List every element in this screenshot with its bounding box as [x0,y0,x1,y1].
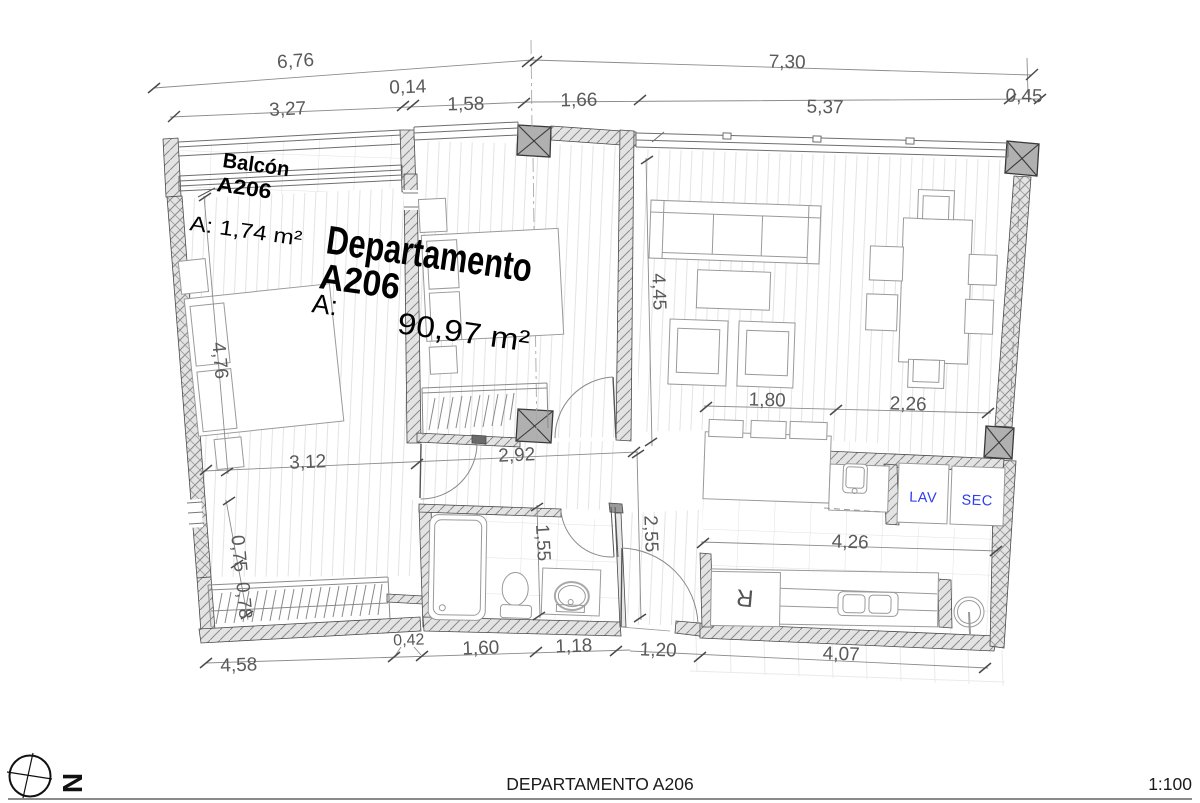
svg-text:A:: A: [310,288,339,321]
svg-text:1,66: 1,66 [560,90,597,112]
svg-text:4,07: 4,07 [822,643,860,665]
svg-text:6,76: 6,76 [276,50,314,74]
svg-text:2,26: 2,26 [889,393,927,415]
svg-text:0,78: 0,78 [231,581,255,620]
svg-text:4,45: 4,45 [647,273,669,311]
svg-text:1:100: 1:100 [1148,774,1192,794]
svg-text:5,37: 5,37 [806,97,843,119]
svg-text:0,75: 0,75 [226,534,250,573]
svg-text:7,30: 7,30 [768,52,806,74]
svg-text:2,55: 2,55 [639,515,661,553]
svg-text:1,60: 1,60 [462,637,500,659]
svg-text:R: R [735,583,755,611]
svg-text:0,14: 0,14 [389,76,427,98]
svg-text:SEC: SEC [961,492,993,509]
svg-text:4,26: 4,26 [831,531,869,553]
svg-text:3,12: 3,12 [289,451,327,474]
svg-text:4,76: 4,76 [207,341,231,380]
svg-text:0,45: 0,45 [1005,86,1042,108]
svg-text:1,55: 1,55 [531,524,554,562]
svg-text:1,20: 1,20 [639,639,677,661]
svg-text:LAV: LAV [909,490,937,507]
svg-text:3,27: 3,27 [269,98,307,121]
svg-text:N: N [57,773,88,793]
svg-text:DEPARTAMENTO A206: DEPARTAMENTO A206 [506,774,693,794]
svg-text:1,58: 1,58 [447,94,484,116]
svg-text:1,18: 1,18 [555,635,593,657]
svg-text:0,42: 0,42 [393,631,425,649]
svg-text:1,80: 1,80 [748,389,786,411]
svg-text:2,92: 2,92 [498,444,536,467]
svg-text:4,58: 4,58 [220,654,258,676]
